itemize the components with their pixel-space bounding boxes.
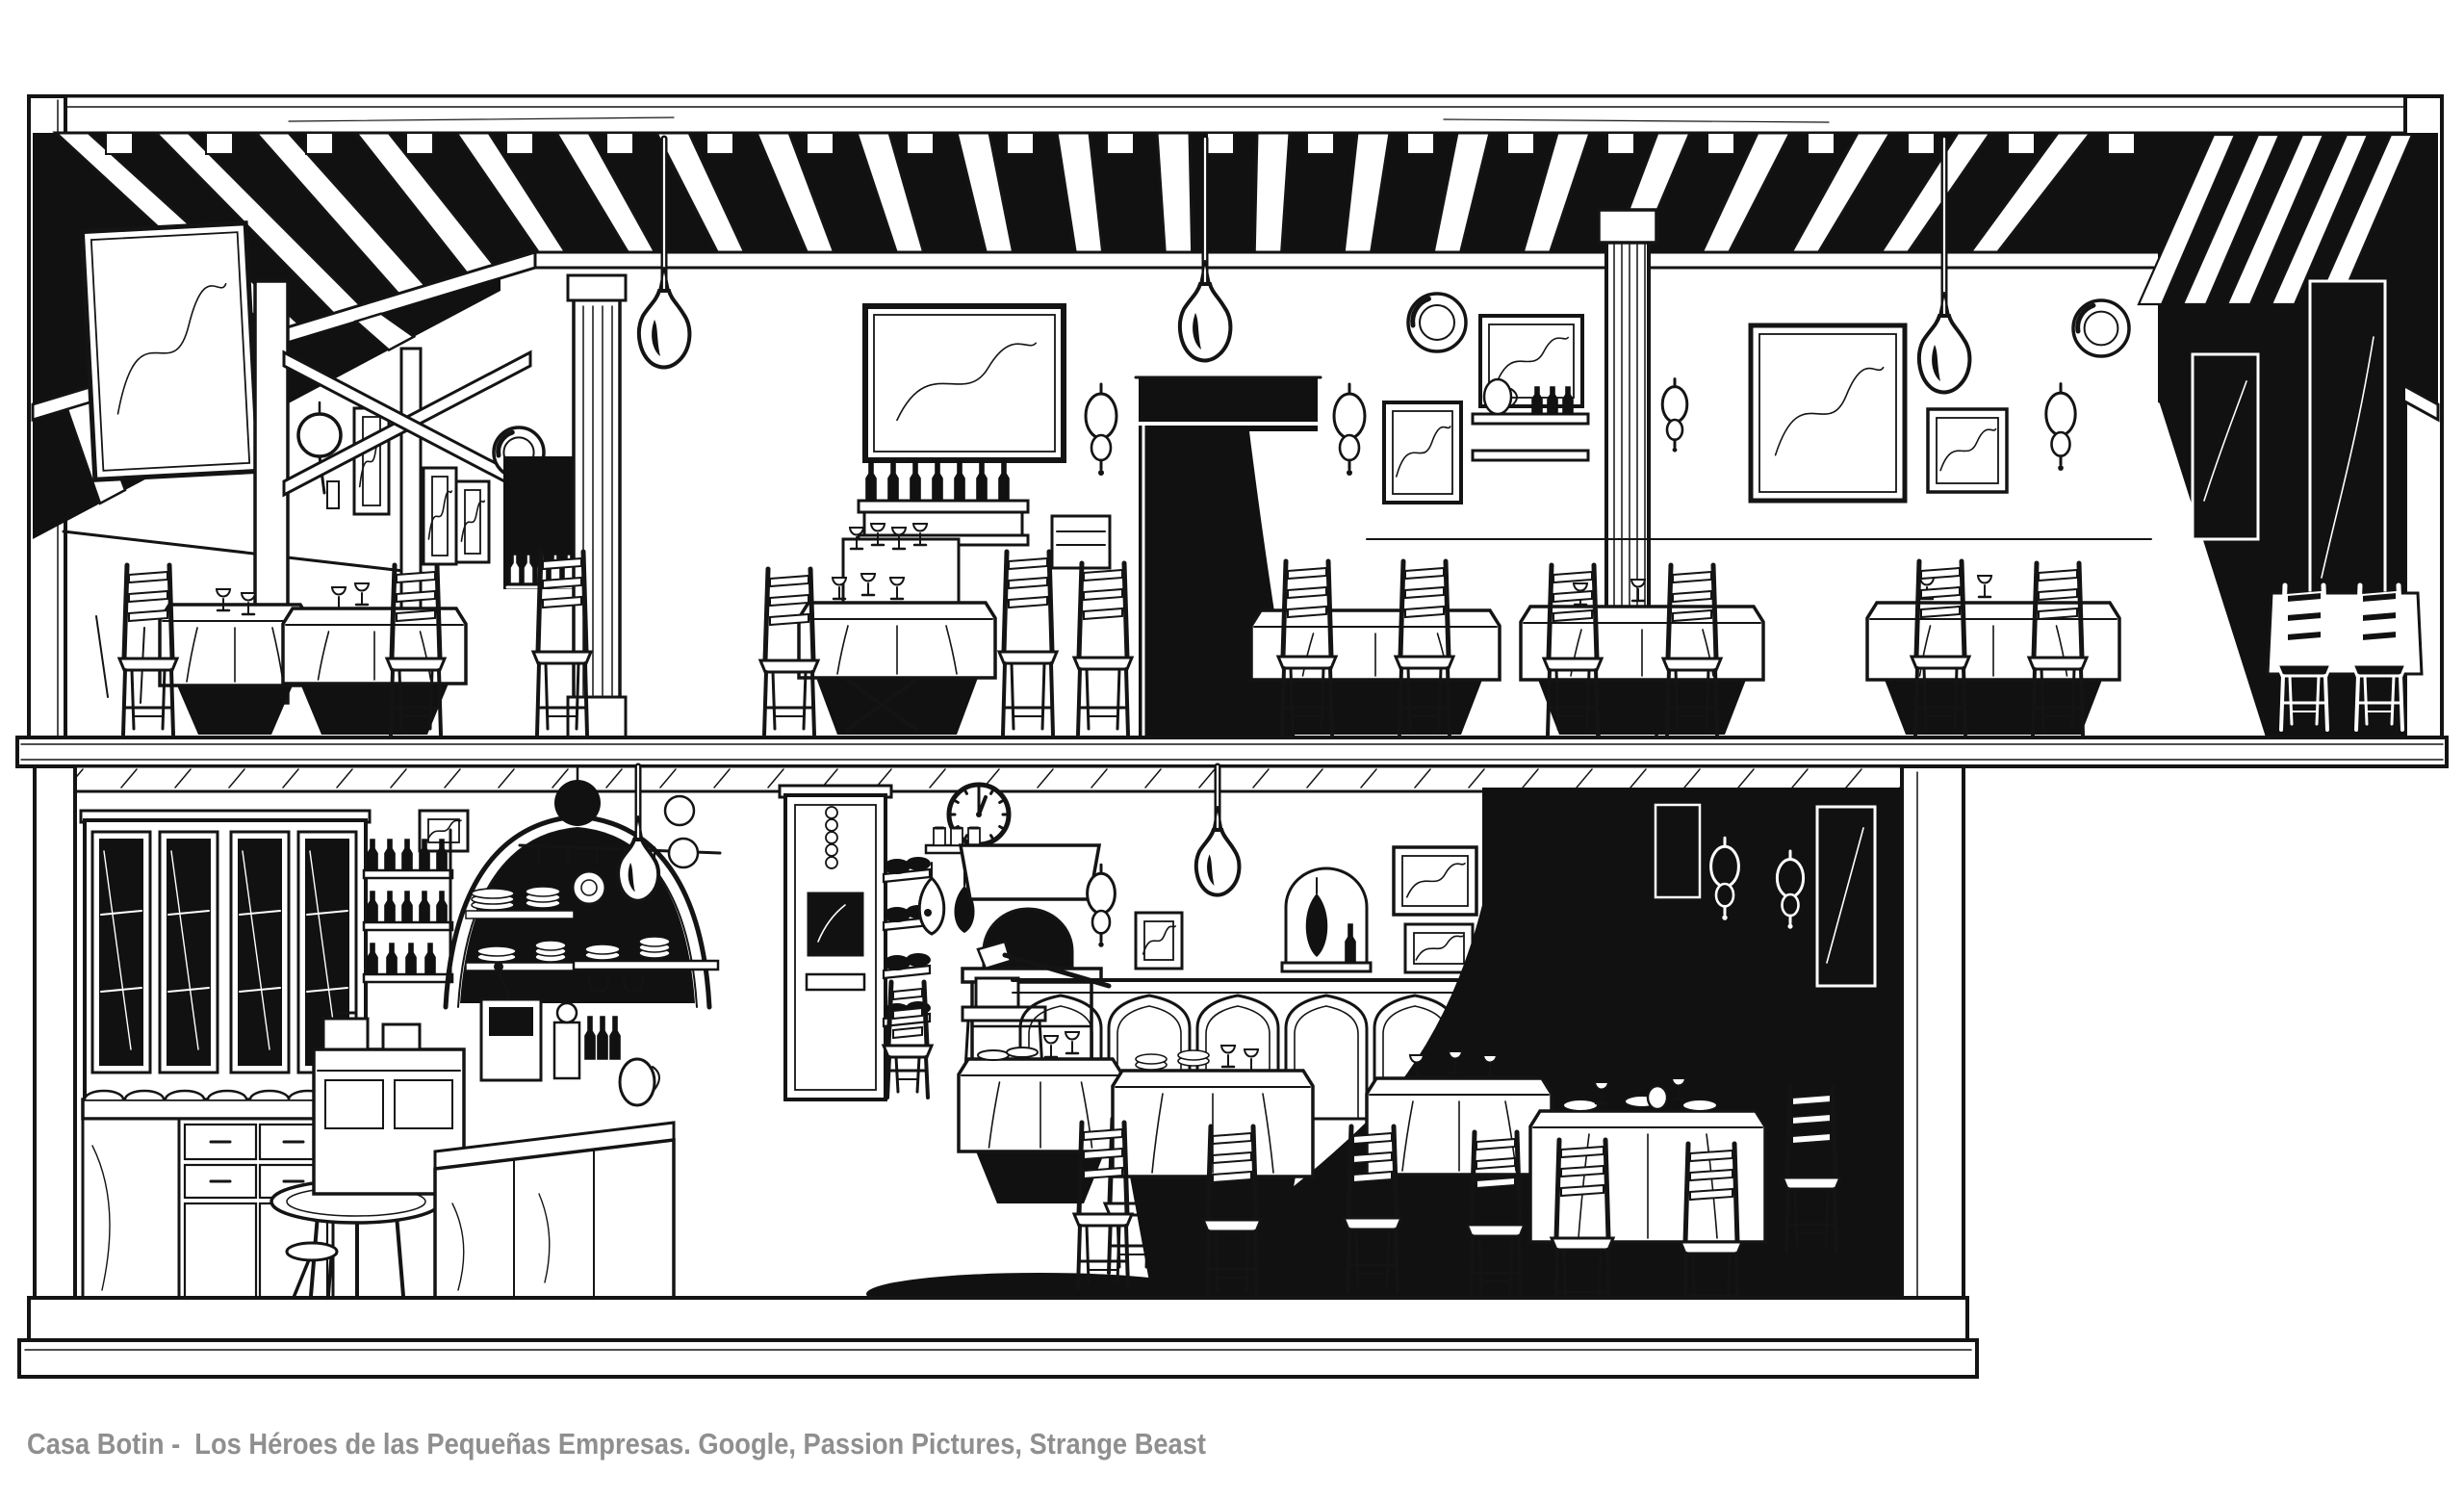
bottle-shelves bbox=[364, 830, 452, 982]
lower-floor bbox=[19, 766, 1977, 1377]
framed-picture bbox=[1928, 409, 2007, 492]
dark-framed-picture bbox=[2193, 354, 2258, 539]
table-with-tablecloth bbox=[1251, 610, 1500, 735]
decorative-wall-plate bbox=[2073, 300, 2129, 356]
base-plinth bbox=[19, 1298, 1977, 1377]
decorative-wall-plate bbox=[1408, 294, 1466, 351]
kitchen-arch bbox=[446, 816, 709, 1007]
framed-picture bbox=[456, 481, 489, 562]
artwork-caption: Casa Botin - Los Héroes de las Pequeñas … bbox=[27, 1427, 1206, 1461]
ladder-back-chair bbox=[884, 982, 932, 1098]
illustration-page: Casa Botin - Los Héroes de las Pequeñas … bbox=[0, 0, 2464, 1500]
framed-picture bbox=[354, 408, 389, 514]
kitchen-area bbox=[81, 766, 720, 1334]
niche-with-wineskin bbox=[1282, 868, 1371, 971]
wall-sconce-lamp bbox=[1088, 865, 1116, 947]
wood-fired-oven bbox=[961, 845, 1109, 1059]
fluted-pilaster bbox=[568, 275, 626, 737]
framed-mirror bbox=[1384, 402, 1461, 503]
tall-cabinet bbox=[780, 786, 891, 1099]
upper-floor-dining-room bbox=[29, 96, 2442, 739]
casa-botin-cutaway-illustration bbox=[0, 0, 2464, 1500]
large-framed-picture bbox=[1751, 325, 1905, 501]
floor-divider-slab bbox=[17, 737, 2447, 766]
framed-picture bbox=[1394, 847, 1476, 915]
dark-framed-picture bbox=[2310, 281, 2385, 616]
large-framed-picture bbox=[82, 223, 258, 480]
framed-picture bbox=[1405, 924, 1473, 972]
framed-picture bbox=[423, 468, 456, 564]
oven-and-clock-area bbox=[780, 785, 1109, 1099]
framed-picture bbox=[1136, 913, 1182, 969]
large-framed-picture bbox=[865, 306, 1064, 460]
